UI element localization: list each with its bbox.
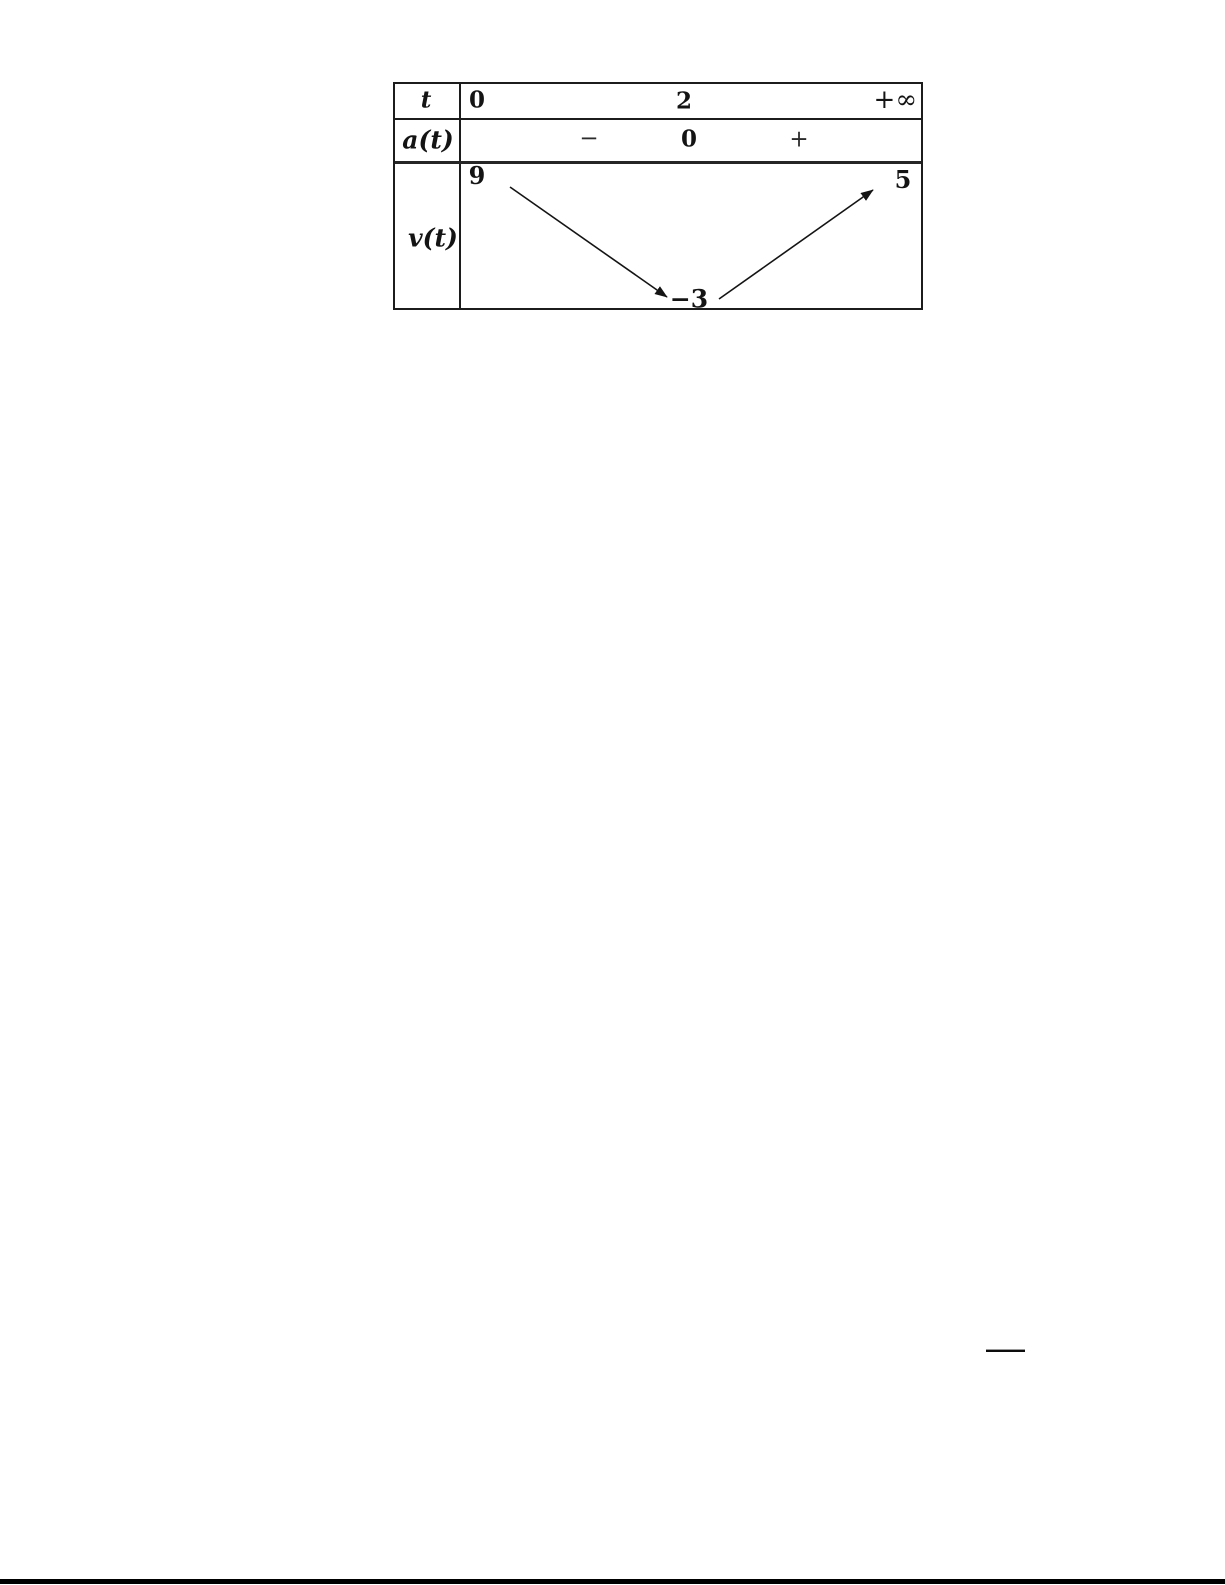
t-value-zero: 0 bbox=[469, 89, 485, 112]
t-value-two: 2 bbox=[676, 90, 692, 113]
fraction-bar-fragment bbox=[986, 1349, 1025, 1352]
v-minimum-value: −3 bbox=[670, 287, 708, 312]
row-separator-t-a bbox=[395, 118, 921, 120]
decreasing-arrow bbox=[510, 187, 667, 297]
velocity-row-label: v(t) bbox=[408, 226, 458, 251]
minus-sign: − bbox=[579, 128, 598, 151]
sign-zero-value: 0 bbox=[681, 128, 697, 151]
acceleration-row-label: a(t) bbox=[402, 128, 453, 153]
variation-table: t 0 2 +∞ a(t) − 0 + v(t) 9 −3 5 bbox=[393, 82, 923, 310]
page-bottom-rule bbox=[0, 1579, 1225, 1584]
increasing-arrow bbox=[719, 190, 873, 299]
plus-sign: + bbox=[789, 129, 808, 152]
v-initial-value: 9 bbox=[469, 164, 486, 188]
document-page: t 0 2 +∞ a(t) − 0 + v(t) 9 −3 5 bbox=[0, 0, 1225, 1585]
t-value-infinity: +∞ bbox=[874, 87, 917, 113]
v-final-value: 5 bbox=[895, 168, 912, 192]
t-variable-label: t bbox=[421, 89, 432, 112]
